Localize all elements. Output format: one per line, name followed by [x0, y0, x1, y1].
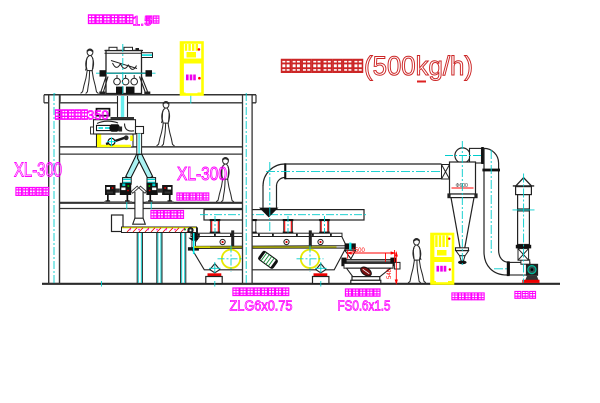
svg-text:350: 350: [87, 108, 109, 123]
svg-text:FS0.6x1.5: FS0.6x1.5: [338, 299, 391, 315]
svg-text:(500kg/h): (500kg/h): [364, 51, 473, 81]
svg-text:1500: 1500: [352, 248, 366, 254]
svg-text:Φ600: Φ600: [456, 183, 469, 189]
svg-text:XL-300: XL-300: [177, 164, 227, 184]
svg-text:548: 548: [387, 268, 393, 279]
svg-text:XL-300: XL-300: [14, 160, 62, 182]
svg-text:ZLG6x0.75: ZLG6x0.75: [230, 299, 293, 315]
